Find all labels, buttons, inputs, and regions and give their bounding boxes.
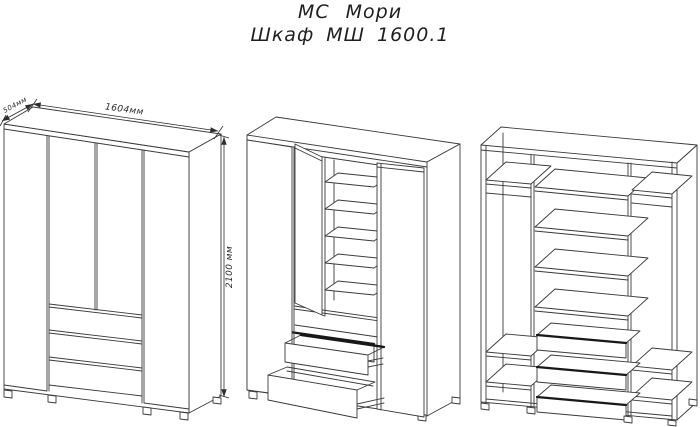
door-4-open (377, 163, 424, 417)
left-column-shelves (486, 162, 551, 390)
side-panel (427, 144, 460, 416)
wardrobe-interior-view (481, 127, 697, 426)
door-2-open (295, 144, 325, 316)
height-dimension-label: 2100 мм (225, 246, 235, 288)
wardrobe-open-view (247, 117, 460, 421)
front-face (4, 124, 189, 413)
top-panel (481, 127, 697, 163)
wardrobe-front-view: 1604мм 504мм 2100 мм (0, 95, 235, 420)
side-panel (189, 134, 221, 413)
technical-drawing-canvas: 1604мм 504мм 2100 мм (0, 0, 700, 427)
center-column-drawers (537, 323, 640, 420)
drawing-sheet: МС Мори Шкаф МШ 1600.1 (0, 0, 700, 427)
